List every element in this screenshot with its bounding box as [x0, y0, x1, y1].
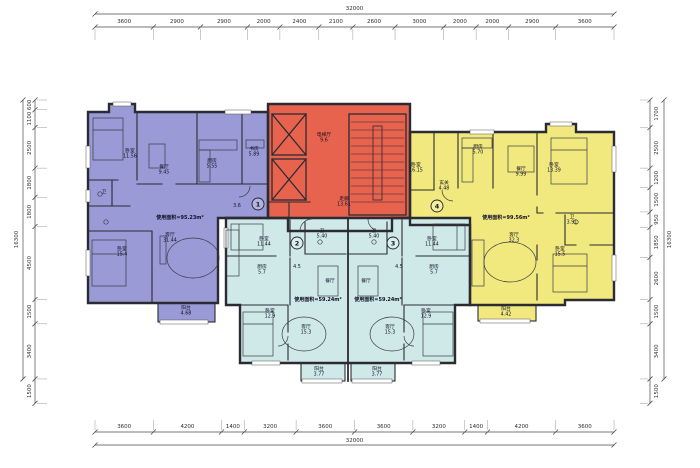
dim-label: 2600 [654, 271, 660, 285]
unit-area-label: 使用面积=59.24m² [353, 296, 401, 303]
window [160, 320, 208, 324]
window [612, 255, 616, 281]
dim-label: 1800 [27, 204, 33, 218]
dim-label: 1100 [27, 111, 33, 125]
dim-label: 1500 [654, 192, 660, 206]
room-label: 阳台3.77 [372, 365, 383, 378]
unit-number: 3 [391, 239, 396, 247]
dim-label: 3600 [578, 424, 592, 430]
dim-label: 2100 [329, 19, 343, 25]
dim-label: 3600 [117, 19, 131, 25]
dim-label: 3400 [27, 344, 33, 358]
unit-number: 2 [295, 239, 300, 247]
window [412, 361, 440, 365]
room-label: 阳台4.68 [181, 304, 192, 317]
room-label: 客厅15.3 [385, 323, 396, 336]
dim-label: 3200 [432, 424, 446, 430]
room-label: 阳台4.42 [501, 305, 512, 318]
room-label: 卫 [102, 189, 107, 195]
window [352, 379, 392, 383]
unit-number: 4 [435, 202, 440, 210]
dim-label: 16300 [667, 230, 673, 248]
dim-label: 2000 [485, 19, 499, 25]
dim-label: 1200 [654, 170, 660, 184]
room-label: 厨房5.70 [473, 143, 484, 156]
room-label: 卧室11.44 [257, 235, 271, 248]
room-label: 餐厅9.99 [516, 165, 527, 178]
room-label: 4.5 [395, 264, 403, 270]
dim-label: 2600 [367, 19, 381, 25]
dim-label: 3200 [263, 424, 277, 430]
window [550, 122, 572, 126]
dim-label: 32000 [346, 6, 364, 12]
window [302, 379, 342, 383]
room-label: 书房5.89 [249, 145, 260, 158]
window [470, 130, 494, 134]
room-label: 卧室15.4 [117, 245, 128, 258]
room-label: 卧室15.5 [555, 245, 566, 258]
room-label: 餐厅9.45 [159, 163, 170, 176]
room-label: 厨房5.55 [207, 157, 218, 170]
dim-label: 2000 [257, 19, 271, 25]
window [86, 146, 90, 168]
dim-label: 1500 [27, 384, 33, 398]
unit-number: 1 [256, 200, 261, 208]
dim-label: 2900 [217, 19, 231, 25]
window [113, 102, 131, 106]
floor-plan-svg: 3200036002900290020002400210026003000200… [0, 0, 700, 468]
window [480, 319, 530, 323]
dim-label: 16300 [14, 230, 20, 248]
room-label: 客厅31.44 [163, 231, 177, 244]
room-label: 餐厅 [325, 277, 335, 284]
dim-label: 1400 [469, 424, 483, 430]
dim-label: 600 [27, 99, 33, 110]
room-label: 餐厅 [361, 277, 371, 284]
dim-label: 3600 [377, 424, 391, 430]
dim-label: 2900 [170, 19, 184, 25]
dim-label: 2900 [525, 19, 539, 25]
dim-label: 1700 [654, 106, 660, 120]
room-label: 卧室13.39 [547, 161, 561, 174]
room-label: 卧室11.44 [425, 235, 439, 248]
window [252, 361, 280, 365]
window [86, 190, 90, 202]
room-label: 阳台3.77 [314, 365, 325, 378]
room-label: 走廊13.61 [337, 195, 351, 208]
dim-label: 1500 [27, 304, 33, 318]
dim-label: 4200 [180, 424, 194, 430]
unit-area-label: 使用面积=59.24m² [293, 296, 341, 303]
window [86, 250, 90, 276]
room-label: 厨房5.7 [257, 263, 267, 276]
dim-label: 2500 [27, 140, 33, 154]
dim-label: 2400 [292, 19, 306, 25]
room-label: 卧室16.15 [409, 161, 423, 174]
room-label: 3.6 [233, 203, 241, 209]
window [225, 110, 251, 114]
room-label: 厨房5.7 [429, 263, 439, 276]
dim-label: 3600 [117, 424, 131, 430]
room-label: 卧室12.9 [265, 307, 276, 320]
room-label: 客厅32.3 [509, 231, 520, 244]
room-label: 客厅15.3 [301, 323, 312, 336]
dim-label: 1500 [654, 384, 660, 398]
window [612, 146, 616, 172]
dim-label: 4200 [515, 424, 529, 430]
dim-label: 3000 [412, 19, 426, 25]
dim-label: 3600 [578, 19, 592, 25]
room-label: 4.5 [293, 264, 301, 270]
room-label: 玄关4.48 [439, 179, 450, 192]
dim-label: 1850 [654, 235, 660, 249]
dim-label: 32000 [346, 438, 364, 444]
unit-area-label: 使用面积=99.56m² [481, 214, 529, 221]
room-label: 卧室11.56 [123, 147, 137, 160]
dim-label: 2000 [453, 19, 467, 25]
unit-area-label: 使用面积=95.23m² [155, 214, 203, 221]
floor-plan-canvas: 3200036002900290020002400210026003000200… [0, 0, 700, 468]
dim-label: 1800 [27, 175, 33, 189]
dim-label: 950 [654, 214, 660, 225]
dim-label: 1500 [654, 304, 660, 318]
dim-label: 3600 [318, 424, 332, 430]
dim-label: 1400 [226, 424, 240, 430]
dim-label: 3400 [654, 344, 660, 358]
room-label: 卧室12.9 [421, 307, 432, 320]
dim-label: 4500 [27, 256, 33, 270]
dim-label: 2500 [654, 140, 660, 154]
